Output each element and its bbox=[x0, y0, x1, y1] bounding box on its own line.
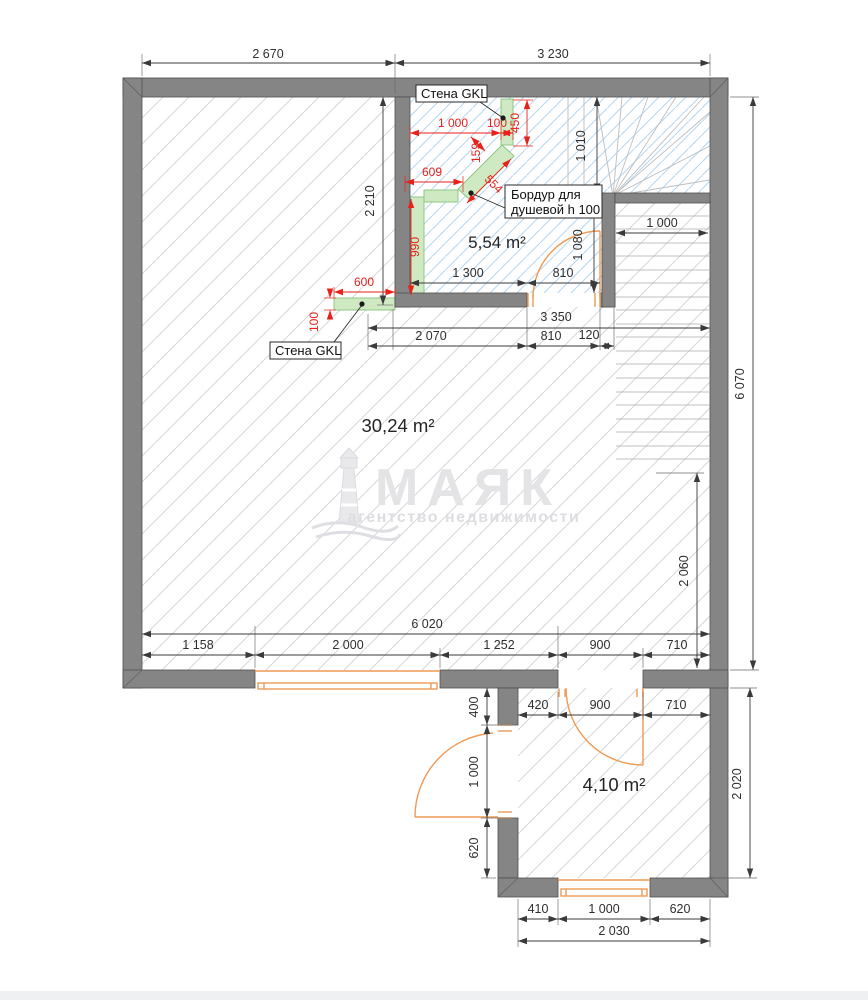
wall-hall-bottom-b bbox=[650, 878, 728, 897]
dim-hall-left-a: 400 bbox=[467, 697, 481, 718]
wall-bathroom-left bbox=[395, 97, 410, 307]
room-label-living: 30,24 m² bbox=[361, 415, 434, 436]
dim-hall-c: 710 bbox=[666, 698, 687, 712]
dim-winder-height: 1 010 bbox=[574, 130, 588, 161]
label-shower-note-1: Бордур для bbox=[511, 187, 581, 202]
dim-gkl-wall-width: 100 bbox=[307, 312, 321, 332]
watermark-tagline: агентство недвижимости bbox=[348, 509, 581, 526]
room-label-hall: 4,10 m² bbox=[583, 774, 646, 795]
wall-stair-divider bbox=[602, 193, 615, 307]
wall-winder-bottom bbox=[615, 193, 710, 203]
page-bottom-edge bbox=[0, 992, 868, 1000]
dim-gkl-stub-length: 450 bbox=[508, 113, 522, 133]
dim-hall-bot-b: 1 000 bbox=[588, 902, 619, 916]
dim-hall-a: 420 bbox=[528, 698, 549, 712]
door-entrance bbox=[415, 725, 512, 818]
dim-bottom-total: 6 020 bbox=[411, 617, 442, 631]
dim-hall-bot-a: 410 bbox=[528, 902, 549, 916]
label-shower-note-2: душевой h 100 bbox=[511, 202, 600, 217]
dim-gkl-wall-length: 600 bbox=[354, 275, 374, 289]
dim-top-right: 3 230 bbox=[537, 47, 568, 61]
hall-door-gap bbox=[558, 670, 643, 688]
label-wall-gkl-top: Стена GKL bbox=[421, 86, 487, 101]
wall-left bbox=[123, 78, 142, 688]
dim-hall-bot-c: 620 bbox=[670, 902, 691, 916]
room-label-bathroom: 5,54 m² bbox=[468, 233, 526, 252]
dim-hall-right-height: 2 020 bbox=[730, 768, 744, 799]
bathroom-door-gap bbox=[527, 293, 600, 307]
label-wall-gkl-left: Стена GKL bbox=[275, 343, 341, 358]
window-gap-main bbox=[255, 670, 440, 688]
shower-border-horizontal bbox=[424, 190, 458, 202]
leader-dot bbox=[468, 190, 473, 195]
wall-bottom-c bbox=[643, 670, 728, 688]
wall-bottom-a bbox=[123, 670, 255, 688]
dim-mid-b: 810 bbox=[541, 329, 562, 343]
dim-bottom-b: 2 000 bbox=[332, 638, 363, 652]
dim-hall-left-c: 620 bbox=[467, 838, 481, 859]
dim-border-width: 159 bbox=[469, 143, 483, 163]
wall-hall-left-bottom bbox=[498, 818, 518, 878]
dim-hall-bot-total: 2 030 bbox=[598, 924, 629, 938]
dim-bath-width: 1 300 bbox=[452, 266, 483, 280]
dim-mid-c: 120 bbox=[579, 328, 600, 342]
leader-dot bbox=[500, 115, 505, 120]
dim-top-left: 2 670 bbox=[252, 47, 283, 61]
dim-hall-left-b: 1 000 bbox=[467, 756, 481, 787]
leader-dot bbox=[359, 301, 364, 306]
dim-bath-left-height: 2 210 bbox=[363, 185, 377, 216]
dim-bottom-a: 1 158 bbox=[182, 638, 213, 652]
wall-hall-left-top bbox=[498, 688, 518, 725]
wall-bathroom-bottom bbox=[395, 293, 527, 307]
dim-shower-strip-height: 990 bbox=[408, 237, 422, 257]
wall-bottom-b bbox=[440, 670, 558, 688]
dim-bath-door: 810 bbox=[553, 266, 574, 280]
dim-stair-width: 1 000 bbox=[646, 216, 677, 230]
dim-living-right-height: 2 060 bbox=[677, 555, 691, 586]
wall-hall-bottom-a bbox=[498, 878, 558, 897]
dim-bottom-c: 1 252 bbox=[483, 638, 514, 652]
dim-bath-right-height: 1 080 bbox=[571, 229, 585, 260]
watermark: МАЯК агентство недвижимости bbox=[312, 448, 580, 540]
dim-shower-side: 609 bbox=[422, 165, 442, 179]
wall-right bbox=[710, 78, 728, 897]
dim-bottom-d: 900 bbox=[590, 638, 611, 652]
lighthouse-lantern bbox=[341, 458, 357, 468]
dim-shower-top-width: 1 000 bbox=[438, 116, 468, 130]
dim-mid-total: 3 350 bbox=[540, 310, 571, 324]
dim-right-height: 6 070 bbox=[733, 368, 747, 399]
window-gap-hall bbox=[558, 878, 650, 897]
dim-mid-a: 2 070 bbox=[415, 329, 446, 343]
floor-plan-page: МАЯК агентство недвижимости bbox=[0, 0, 868, 1000]
dim-hall-b: 900 bbox=[590, 698, 611, 712]
dim-bottom-e: 710 bbox=[667, 638, 688, 652]
floor-plan-drawing: МАЯК агентство недвижимости bbox=[0, 0, 868, 1000]
